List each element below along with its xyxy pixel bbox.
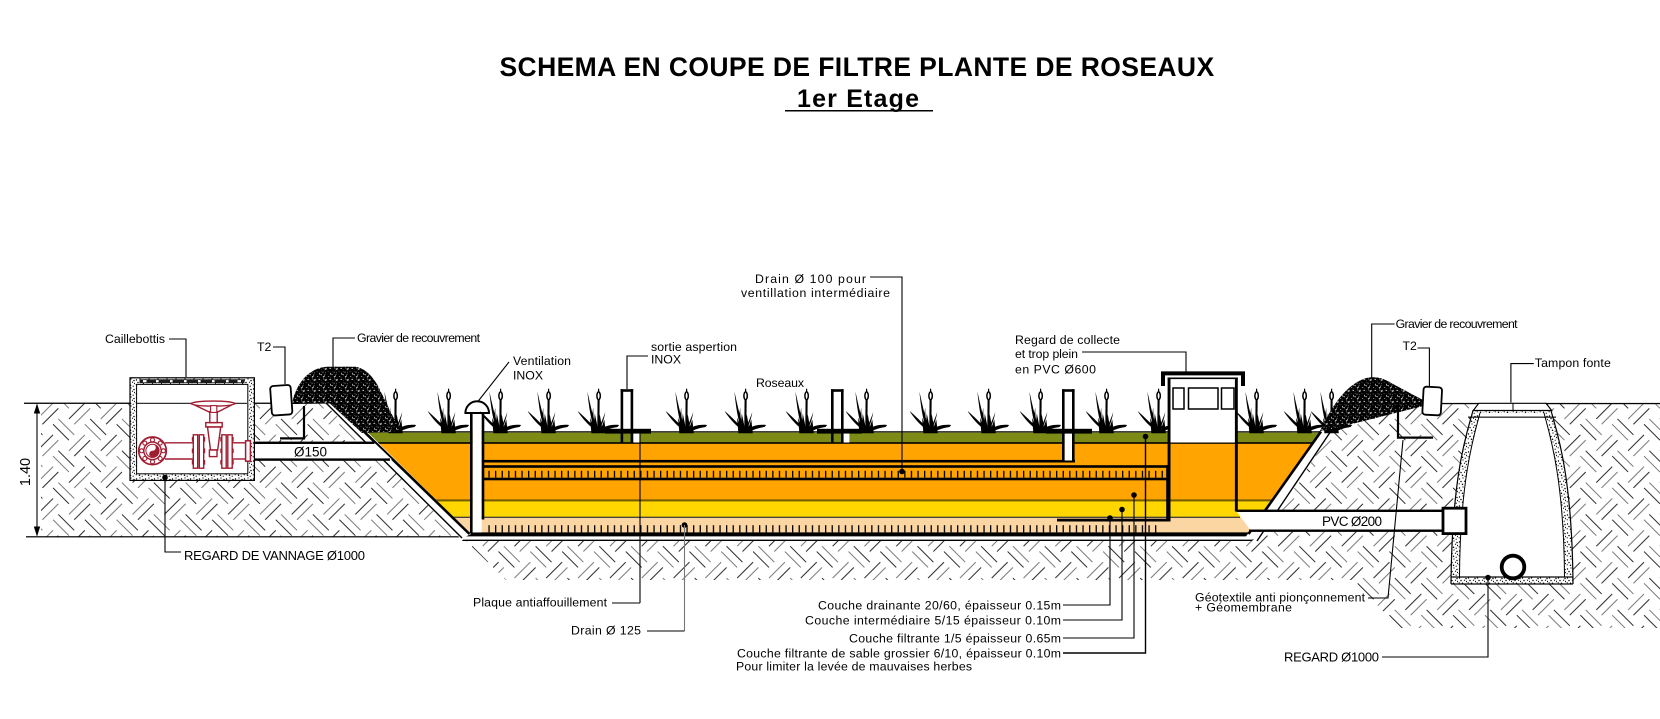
svg-text:INOX: INOX (651, 353, 681, 367)
svg-text:SCHEMA EN COUPE DE FILTRE PLAN: SCHEMA EN COUPE DE FILTRE PLANTE DE ROSE… (499, 52, 1214, 82)
svg-text:en PVC Ø600: en PVC Ø600 (1015, 363, 1096, 377)
svg-text:Couche filtrante 1/5 épaisseur: Couche filtrante 1/5 épaisseur 0.65m (849, 632, 1061, 646)
svg-text:et trop plein: et trop plein (1015, 347, 1078, 361)
svg-text:Gravier de recouvrement: Gravier de recouvrement (357, 331, 481, 345)
svg-text:Couche drainante 20/60, épaiss: Couche drainante 20/60, épaisseur 0.15m (818, 599, 1061, 613)
svg-text:REGARD DE VANNAGE Ø1000: REGARD DE VANNAGE Ø1000 (184, 548, 365, 563)
svg-text:INOX: INOX (513, 369, 543, 383)
svg-text:1.40: 1.40 (18, 458, 34, 486)
svg-text:PVC Ø200: PVC Ø200 (1322, 514, 1382, 529)
svg-text:Drain Ø 100 pour: Drain Ø 100 pour (755, 272, 866, 286)
svg-text:ventillation intermédiaire: ventillation intermédiaire (741, 286, 890, 300)
svg-text:Regard de collecte: Regard de collecte (1015, 333, 1120, 347)
svg-text:1er Etage: 1er Etage (797, 85, 919, 113)
svg-text:Drain Ø 125: Drain Ø 125 (571, 624, 641, 638)
svg-text:+ Géomembrane: + Géomembrane (1195, 601, 1292, 615)
svg-text:Roseaux: Roseaux (756, 376, 805, 390)
svg-text:Gravier de recouvrement: Gravier de recouvrement (1396, 317, 1519, 331)
svg-text:Ventilation: Ventilation (513, 354, 571, 368)
svg-text:REGARD Ø1000: REGARD Ø1000 (1284, 650, 1379, 665)
svg-text:T2: T2 (1403, 339, 1418, 353)
svg-text:Plaque antiaffouillement: Plaque antiaffouillement (473, 596, 608, 610)
svg-text:Tampon fonte: Tampon fonte (1535, 356, 1611, 370)
svg-text:Pour limiter la levée de mauva: Pour limiter la levée de mauvaises herbe… (736, 660, 972, 674)
svg-text:Couche intermédiaire 5/15 épa: Couche intermédiaire 5/15 épaisseur 0.10… (805, 614, 1061, 628)
svg-text:Ø150: Ø150 (294, 445, 327, 460)
svg-text:Couche filtrante de sable gros: Couche filtrante de sable grossier 6/10,… (737, 647, 1061, 661)
svg-text:T2: T2 (257, 340, 272, 354)
svg-text:Caillebottis: Caillebottis (105, 332, 165, 346)
